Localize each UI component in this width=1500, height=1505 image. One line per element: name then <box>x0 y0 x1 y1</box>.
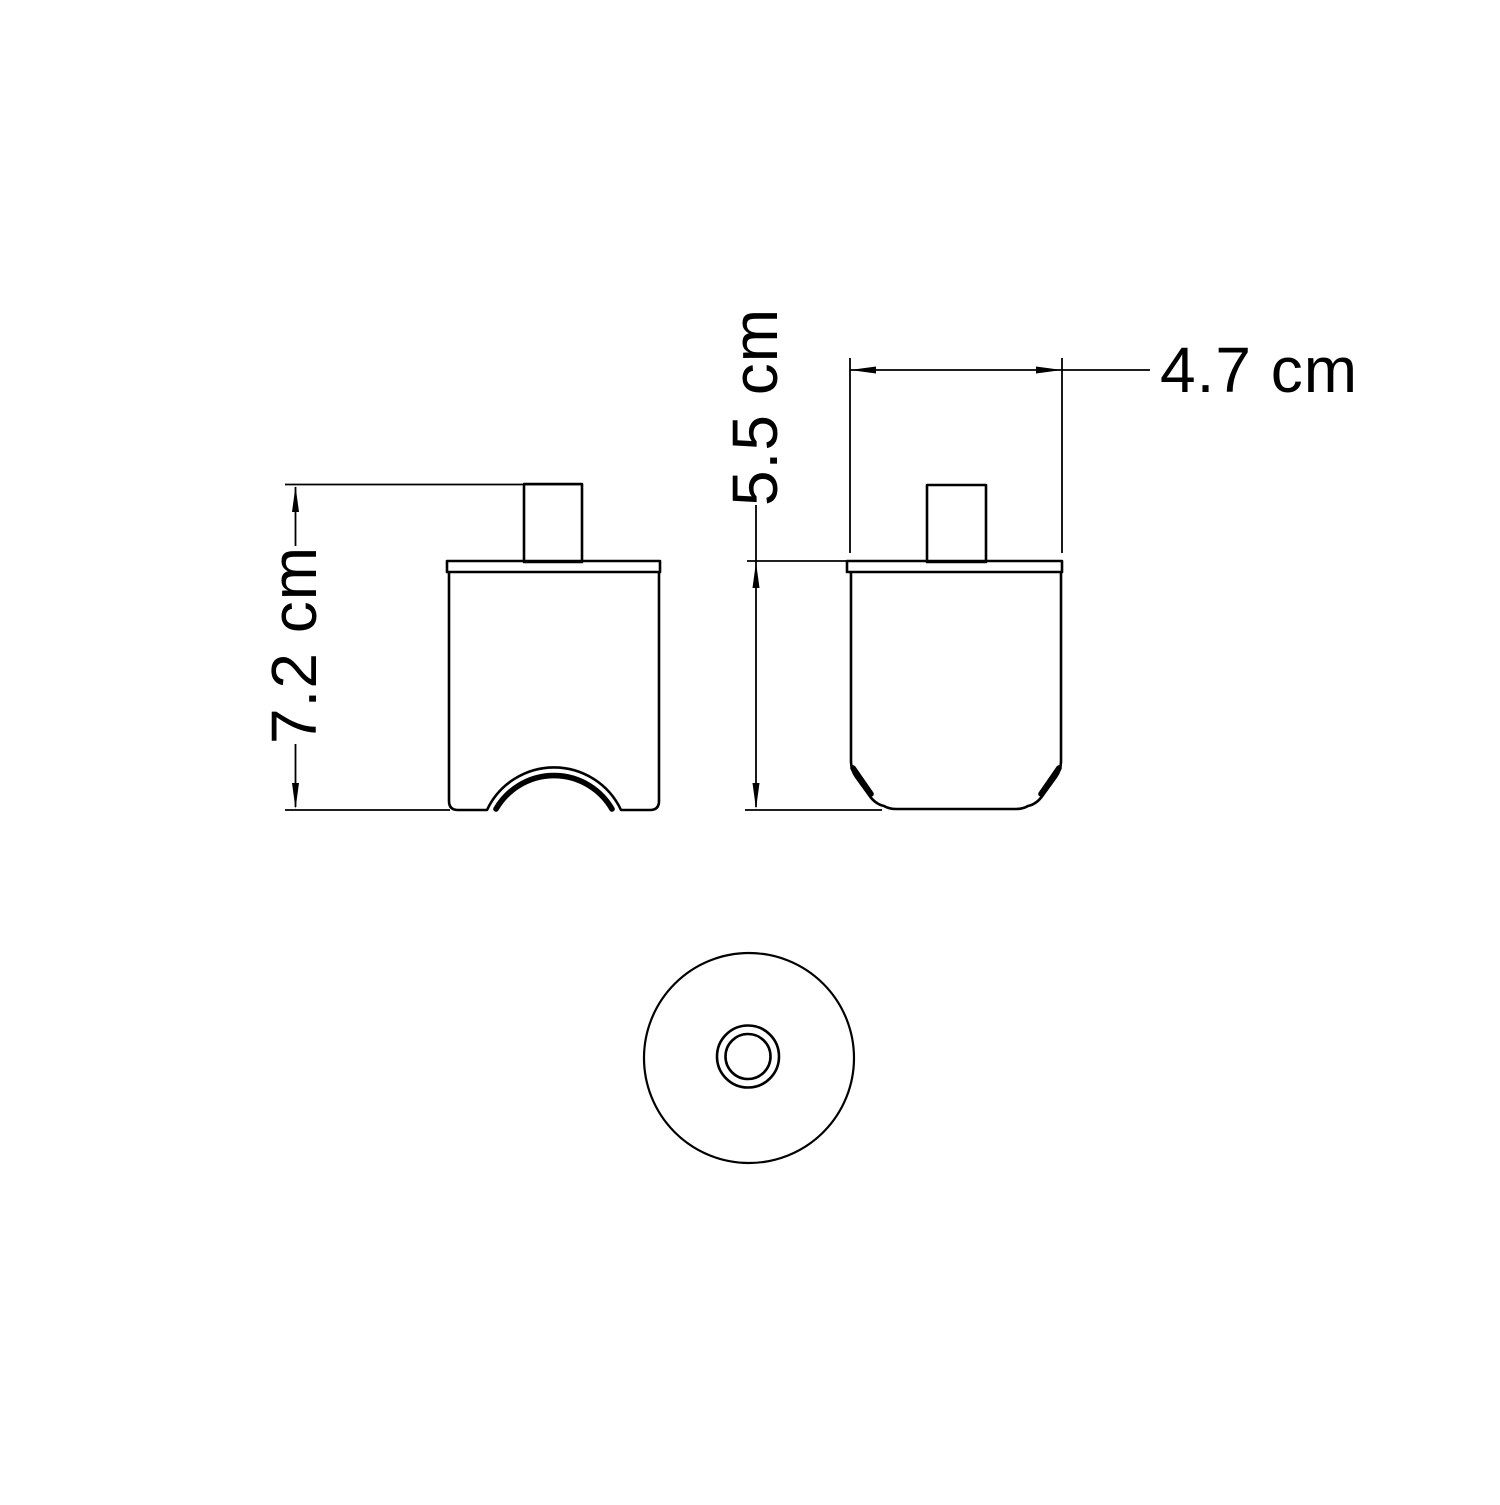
bottom-view-disc <box>644 953 854 1163</box>
side-view-bevel-left <box>853 768 871 794</box>
side-height-label: 5.5 cm <box>719 308 791 506</box>
technical-drawing-page: 7.2 cm 4.7 cm <box>0 0 1500 1500</box>
bottom-view-hole-inner <box>726 1034 771 1079</box>
front-height-label: 7.2 cm <box>258 546 330 744</box>
side-view-stem <box>927 485 986 562</box>
technical-drawing: 7.2 cm 4.7 cm <box>0 0 1500 1500</box>
front-view <box>447 484 660 810</box>
front-view-stem <box>524 484 582 562</box>
bottom-view <box>644 953 854 1163</box>
arrow-left-icon <box>850 367 876 374</box>
arrow-down-icon <box>753 783 760 809</box>
arrow-right-icon <box>1036 367 1062 374</box>
arrow-down-icon <box>292 783 299 809</box>
dimension-side-height: 5.5 cm <box>719 308 882 810</box>
side-width-label: 4.7 cm <box>1160 334 1358 406</box>
arrow-up-icon <box>753 562 760 588</box>
side-view-body <box>851 572 1061 809</box>
arrow-up-icon <box>292 486 299 512</box>
dimension-front-height: 7.2 cm <box>258 485 582 811</box>
side-view <box>847 485 1062 809</box>
side-view-bevel-right <box>1041 768 1059 794</box>
